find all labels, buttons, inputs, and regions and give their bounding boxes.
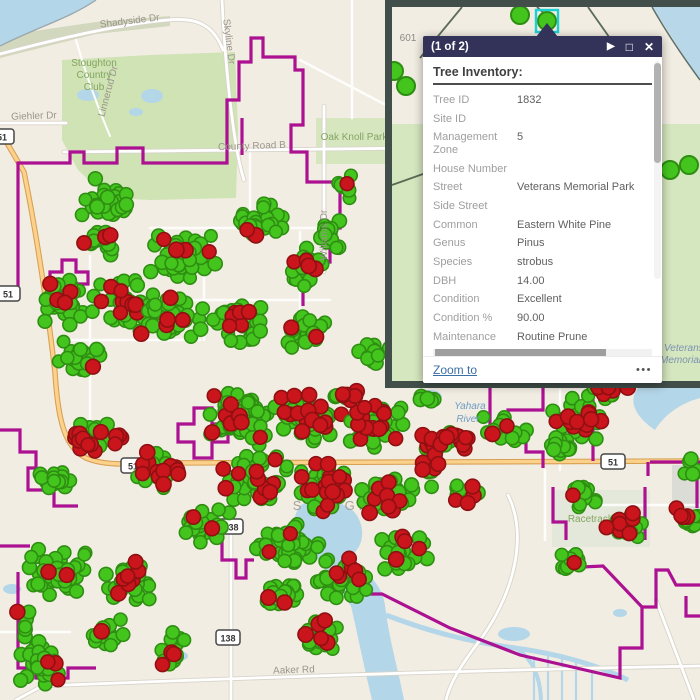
next-feature-icon[interactable]: ▶ [607,41,615,52]
tree-marker-red[interactable] [625,506,640,521]
tree-marker-green[interactable] [661,161,679,179]
tree-marker-green[interactable] [116,628,130,642]
tree-marker-green[interactable] [31,577,45,591]
popup-field-row: Management Zone5 [433,131,652,156]
tree-marker-red[interactable] [94,624,109,639]
field-value [517,163,652,176]
field-label: Side Street [433,200,515,213]
tree-marker-red[interactable] [415,462,430,477]
tree-marker-red[interactable] [242,305,257,320]
tree-marker-red[interactable] [166,647,181,662]
tree-marker-red[interactable] [274,391,288,405]
tree-marker-green[interactable] [25,551,38,564]
tree-marker-red[interactable] [160,312,175,327]
tree-marker-red[interactable] [283,527,297,541]
tree-marker-red[interactable] [218,481,233,496]
field-label: Tree ID [433,94,515,107]
tree-marker-red[interactable] [205,425,220,440]
tree-marker-green[interactable] [179,526,192,539]
tree-marker-red[interactable] [622,526,636,540]
field-value: 5 [517,131,652,156]
tree-marker-green[interactable] [19,621,31,633]
map-application: STOUGHTONRacetrack Park 51515151138138 S… [0,0,700,700]
inset-label: Veterans [664,343,700,354]
tree-marker-red[interactable] [58,295,73,310]
map-label: Club [84,82,105,93]
tree-marker-green[interactable] [48,475,61,488]
tree-marker-green[interactable] [270,225,283,238]
popup-footer: Zoom to ••• [423,356,662,383]
tree-marker-red[interactable] [381,499,396,514]
tree-marker-red[interactable] [10,604,25,619]
popup-pagination: (1 of 2) [431,41,469,53]
tree-marker-red[interactable] [389,552,404,567]
popup-field-row: DBH14.00 [433,275,652,288]
tree-marker-red[interactable] [325,484,340,499]
inset-label: Memorial [660,355,700,366]
tree-marker-red[interactable] [333,470,347,484]
tree-marker-green[interactable] [74,343,87,356]
tree-marker-red[interactable] [314,631,328,645]
tree-marker-green[interactable] [203,408,216,421]
field-value: Pinus [517,237,652,250]
tree-marker-green[interactable] [38,315,52,329]
field-label: Genus [433,237,515,250]
tree-marker-red[interactable] [566,488,580,502]
tree-marker-red[interactable] [500,419,514,433]
tree-marker-red[interactable] [301,258,316,273]
tree-marker-green[interactable] [61,351,74,364]
field-label: House Number [433,163,515,176]
tree-marker-red[interactable] [302,388,317,403]
vertical-scrollbar-thumb[interactable] [654,63,661,163]
tree-marker-red[interactable] [398,534,413,549]
tree-marker-red[interactable] [86,359,101,374]
popup-field-row: CommonEastern White Pine [433,219,652,232]
field-label: Street [433,181,515,194]
popup-field-row: ConditionExcellent [433,293,652,306]
tree-marker-red[interactable] [362,505,377,520]
tree-marker-green[interactable] [88,172,102,186]
tree-marker-green[interactable] [451,479,464,492]
tree-marker-red[interactable] [59,568,74,583]
field-label: Management Zone [433,131,515,156]
tree-marker-green[interactable] [14,673,28,687]
tree-marker-red[interactable] [249,464,263,478]
tree-marker-green[interactable] [298,280,311,293]
tree-marker-red[interactable] [309,329,324,344]
field-value: 90.00 [517,312,652,325]
field-value [517,200,652,213]
horizontal-scrollbar[interactable] [433,349,652,356]
tree-marker-red[interactable] [94,294,108,308]
tree-marker-red[interactable] [287,388,302,403]
map-label: River [456,414,480,425]
field-label: Condition % [433,312,515,325]
tree-marker-red[interactable] [134,326,149,341]
tree-marker-green[interactable] [99,567,113,581]
tree-marker-green[interactable] [372,349,385,362]
tree-marker-red[interactable] [41,564,56,579]
tree-marker-red[interactable] [43,276,58,291]
popup-divider [433,83,652,85]
tree-marker-red[interactable] [321,498,335,512]
tree-marker-red[interactable] [277,405,291,419]
tree-marker-green[interactable] [285,341,298,354]
tree-marker-red[interactable] [295,470,309,484]
tree-marker-red[interactable] [268,453,282,467]
tree-marker-red[interactable] [358,401,372,415]
tree-marker-green[interactable] [143,592,156,605]
route-shield-number: 51 [608,458,618,468]
tree-marker-red[interactable] [460,496,475,511]
map-label: Giehler Dr [11,110,58,123]
popup-field-row: Side Street [433,200,652,213]
tree-marker-red[interactable] [262,545,276,559]
field-label: Condition [433,293,515,306]
tree-marker-red[interactable] [234,415,249,430]
popup-field-row: House Number [433,163,652,176]
tree-marker-red[interactable] [128,555,142,569]
field-label: Site ID [433,113,515,126]
popup-fields: Tree ID1832Site IDManagement Zone5House … [433,94,652,343]
tree-marker-green[interactable] [196,302,209,315]
tree-marker-red[interactable] [352,572,366,586]
tree-marker-red[interactable] [202,245,216,259]
tree-marker-red[interactable] [186,510,200,524]
tree-marker-green[interactable] [257,201,270,214]
field-value: Veterans Memorial Park [517,181,652,194]
tree-marker-green[interactable] [149,298,162,311]
tree-marker-green[interactable] [330,591,343,604]
tree-marker-red[interactable] [121,569,135,583]
tree-marker-green[interactable] [278,554,291,567]
tree-marker-red[interactable] [51,673,65,687]
tree-marker-red[interactable] [465,479,480,494]
tree-marker-red[interactable] [381,475,395,489]
tree-marker-green[interactable] [555,548,568,561]
tree-marker-green[interactable] [70,584,84,598]
tree-marker-red[interactable] [439,430,454,445]
tree-marker-red[interactable] [389,432,403,446]
feature-popup: (1 of 2) ▶ □ ✕ Tree Inventory: Tree ID18… [423,36,662,383]
maximize-icon[interactable]: □ [626,40,633,54]
tree-marker-green[interactable] [212,503,225,516]
tree-marker-red[interactable] [176,313,190,327]
tree-marker-green[interactable] [680,156,698,174]
tree-marker-red[interactable] [77,236,91,250]
popup-callout-arrow [536,23,558,37]
map-label: Yahara [454,401,486,412]
tree-marker-red[interactable] [284,320,299,335]
tree-marker-red[interactable] [336,387,350,401]
tree-marker-green[interactable] [547,443,561,457]
tree-marker-red[interactable] [340,177,354,191]
tree-marker-green[interactable] [319,555,332,568]
tree-marker-green[interactable] [78,548,90,560]
route-shield-number: 51 [0,133,7,143]
tree-marker-red[interactable] [321,457,336,472]
tree-marker-green[interactable] [104,639,117,652]
tree-marker-red[interactable] [313,418,327,432]
tree-marker-red[interactable] [261,590,276,605]
tree-marker-green[interactable] [90,342,104,356]
field-value: strobus [517,256,652,269]
tree-marker-red[interactable] [128,297,143,312]
tree-marker-red[interactable] [459,431,473,445]
tree-marker-red[interactable] [277,595,292,610]
tree-marker-green[interactable] [391,406,405,420]
tree-marker-red[interactable] [305,482,320,497]
tree-marker-green[interactable] [165,257,178,270]
tree-marker-red[interactable] [263,485,278,500]
tree-marker-red[interactable] [570,415,585,430]
tree-marker-green[interactable] [178,633,191,646]
tree-marker-red[interactable] [298,627,313,642]
field-value: Routine Prune [517,331,652,344]
tree-marker-green[interactable] [303,314,316,327]
route-shield-number: 138 [220,634,235,644]
field-label: Species [433,256,515,269]
field-value: Excellent [517,293,652,306]
tree-marker-red[interactable] [216,462,230,476]
tree-marker-red[interactable] [599,520,613,534]
tree-marker-red[interactable] [485,426,500,441]
map-label: Aaker Rd [273,664,315,676]
tree-marker-red[interactable] [114,284,128,298]
popup-field-row: Speciesstrobus [433,256,652,269]
tree-marker-red[interactable] [140,445,155,460]
tree-marker-red[interactable] [329,566,343,580]
tree-marker-red[interactable] [240,223,254,237]
tree-marker-red[interactable] [232,467,246,481]
tree-marker-red[interactable] [171,467,186,482]
tree-marker-red[interactable] [584,412,599,427]
tree-marker-red[interactable] [674,509,688,523]
tree-marker-red[interactable] [377,406,391,420]
tree-marker-green[interactable] [311,541,324,554]
inset-label: 601 [400,33,417,44]
tree-marker-green[interactable] [101,190,115,204]
popup-header[interactable]: (1 of 2) ▶ □ ✕ [423,36,662,57]
popup-field-row: Site ID [433,113,652,126]
tree-marker-red[interactable] [157,232,171,246]
tree-marker-red[interactable] [81,438,95,452]
tree-marker-green[interactable] [253,451,267,465]
popup-title: Tree Inventory: [433,63,652,79]
horizontal-scrollbar-thumb[interactable] [435,349,606,356]
popup-field-row: GenusPinus [433,237,652,250]
tree-marker-red[interactable] [155,658,169,672]
tree-marker-green[interactable] [130,278,144,292]
close-icon[interactable]: ✕ [644,40,654,54]
field-value: 14.00 [517,275,652,288]
tree-marker-green[interactable] [684,452,698,466]
tree-marker-red[interactable] [317,613,332,628]
popup-field-row: StreetVeterans Memorial Park [433,181,652,194]
tree-marker-red[interactable] [223,319,237,333]
tree-marker-green[interactable] [194,322,208,336]
tree-marker-green[interactable] [166,626,179,639]
tree-marker-red[interactable] [103,228,118,243]
tree-marker-green[interactable] [281,460,294,473]
tree-marker-red[interactable] [207,389,221,403]
tree-marker-green[interactable] [330,241,343,254]
tree-marker-green[interactable] [205,230,217,242]
tree-marker-red[interactable] [108,437,122,451]
tree-marker-red[interactable] [567,556,581,570]
popup-field-row: MaintenanceRoutine Prune [433,331,652,344]
tree-marker-red[interactable] [163,290,178,305]
tree-marker-green[interactable] [420,391,434,405]
map-label: Williams Dr [319,209,330,260]
tree-marker-green[interactable] [119,197,133,211]
popup-body: Tree Inventory: Tree ID1832Site IDManage… [423,57,662,356]
tree-marker-green[interactable] [511,7,529,24]
tree-marker-green[interactable] [224,334,237,347]
field-value [517,113,652,126]
tree-marker-red[interactable] [412,542,426,556]
tree-marker-green[interactable] [57,335,69,347]
field-label: Maintenance [433,331,515,344]
tree-marker-green[interactable] [242,396,255,409]
field-value: 1832 [517,94,652,107]
tree-marker-green[interactable] [194,536,207,549]
tree-marker-red[interactable] [93,425,108,440]
field-label: DBH [433,275,515,288]
route-shield-number: 51 [3,290,13,300]
tree-marker-red[interactable] [41,655,55,669]
tree-marker-green[interactable] [253,324,267,338]
popup-field-row: Condition %90.00 [433,312,652,325]
tree-marker-red[interactable] [431,457,446,472]
field-label: Common [433,219,515,232]
zoom-to-link[interactable]: Zoom to [433,363,477,377]
tree-marker-red[interactable] [253,430,267,444]
tree-marker-green[interactable] [397,77,415,95]
tree-marker-green[interactable] [686,467,700,481]
tree-marker-green[interactable] [425,480,438,493]
tree-marker-red[interactable] [156,477,171,492]
tree-marker-green[interactable] [405,478,419,492]
popup-field-row: Tree ID1832 [433,94,652,107]
map-label: Oak Knoll Park [321,132,389,143]
tree-marker-red[interactable] [136,467,150,481]
field-value: Eastern White Pine [517,219,652,232]
tree-marker-green[interactable] [114,613,127,626]
tree-marker-red[interactable] [169,242,184,257]
more-options-button[interactable]: ••• [636,364,652,376]
tree-marker-red[interactable] [205,521,220,536]
